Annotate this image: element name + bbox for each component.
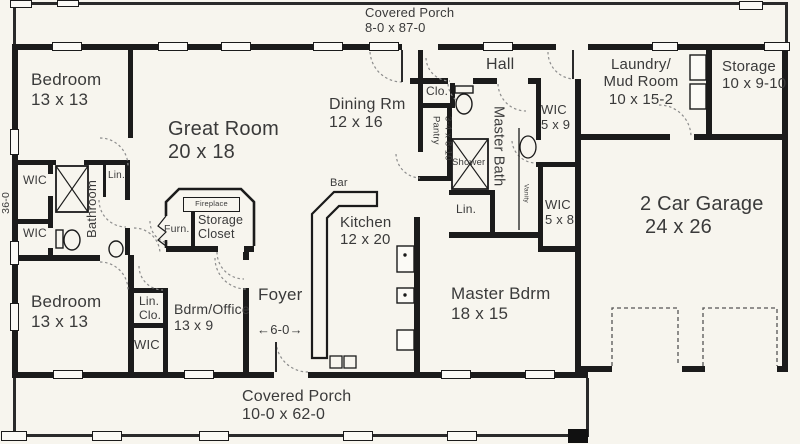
porch-post <box>199 431 229 441</box>
foyer-label: Foyer <box>258 285 302 305</box>
bedroom-bottom-label: Bedroom 13 x 13 <box>31 292 101 331</box>
master-bdrm-label: Master Bdrm 18 x 15 <box>451 284 551 323</box>
kitchen-label: Kitchen 12 x 20 <box>340 214 391 249</box>
room-dims: 10 x 9-10 <box>722 75 786 92</box>
window <box>52 42 82 51</box>
closet-name: WIC <box>545 198 574 213</box>
bottom-porch-dims: 10-0 x 62-0 <box>242 406 351 424</box>
closet-name: Lin. <box>139 295 161 309</box>
window <box>313 42 343 51</box>
room-name: Dining Rm <box>329 96 406 114</box>
room-dims: 12 x 20 <box>340 231 391 248</box>
closet-name: Pantry <box>429 116 441 161</box>
window <box>652 42 678 51</box>
lin-master-label: Lin. <box>456 203 476 217</box>
window <box>441 370 471 379</box>
wic-left-lower-label: WIC <box>23 227 47 241</box>
great-room-label: Great Room 20 x 18 <box>168 118 279 164</box>
kitchen-appliances <box>397 246 414 350</box>
pantry-label: Pantry 3-4 x 8-10 <box>429 116 454 161</box>
bar-label: Bar <box>330 177 348 190</box>
garage-label: 2 Car Garage 24 x 26 <box>640 193 764 239</box>
room-name: Bdrm/Office <box>174 301 250 317</box>
bottom-porch-label: Covered Porch 10-0 x 62-0 <box>242 388 351 425</box>
floor-plan: Covered Porch 8-0 x 87-0 Covered Porch 1… <box>0 0 800 444</box>
window <box>369 42 399 51</box>
window <box>158 42 188 51</box>
room-name: Kitchen <box>340 214 391 231</box>
top-porch-label: Covered Porch 8-0 x 87-0 <box>365 6 454 36</box>
room-dims: 13 x 9 <box>174 317 250 333</box>
shower-label: Shower <box>452 158 485 169</box>
window <box>525 370 555 379</box>
clo-hall-label: Clo. <box>426 85 448 99</box>
wic-office-label: WIC <box>134 338 160 353</box>
room-dims: 10 x 15-2 <box>596 91 686 108</box>
top-porch-dims: 8-0 x 87-0 <box>365 21 454 36</box>
window <box>184 370 214 379</box>
closet-name: WIC <box>541 103 570 118</box>
bathroom-label: Bathroom <box>85 180 100 238</box>
garage-door-dashes <box>612 308 777 366</box>
depth-dim-label: 36-0 <box>0 192 12 214</box>
room-dims: 12 x 16 <box>329 114 406 132</box>
lin-clo-label: Lin. Clo. <box>139 295 161 323</box>
vanity-label: Vanity <box>522 184 529 203</box>
room-dims: 24 x 26 <box>645 216 764 239</box>
window <box>10 129 19 155</box>
porch-post <box>739 1 763 10</box>
top-porch-name: Covered Porch <box>365 6 454 21</box>
room-dims: 20 x 18 <box>168 141 279 164</box>
fireplace-label: Fireplace <box>195 200 228 209</box>
closet-name: Clo. <box>139 309 161 323</box>
porch-post <box>447 431 477 441</box>
laundry-label: Laundry/ Mud Room 10 x 15-2 <box>596 56 686 108</box>
window <box>53 370 83 379</box>
bottom-porch-name: Covered Porch <box>242 388 351 406</box>
master-toilet-icon <box>455 86 473 114</box>
dining-label: Dining Rm 12 x 16 <box>329 96 406 133</box>
closet-dims: 5 x 9 <box>541 118 570 133</box>
room-dims: 13 x 13 <box>31 90 101 110</box>
room-name: Great Room <box>168 118 279 141</box>
master-bath-label: Master Bath <box>490 106 507 186</box>
window <box>764 42 790 51</box>
wic-master-1-label: WIC 5 x 9 <box>541 103 570 133</box>
room-name: Mud Room <box>596 73 686 90</box>
room-name: Master Bdrm <box>451 284 551 304</box>
porch-post <box>92 431 122 441</box>
bedroom-top-label: Bedroom 13 x 13 <box>31 70 101 109</box>
room-name: Storage <box>722 58 786 75</box>
porch-post <box>10 0 32 8</box>
room-name: 2 Car Garage <box>640 193 764 216</box>
room-name: Bedroom <box>31 70 101 90</box>
wic-left-upper-label: WIC <box>23 174 47 188</box>
window <box>10 303 19 331</box>
washer-dryer-icons <box>690 55 706 109</box>
window <box>483 42 513 51</box>
window <box>10 241 19 265</box>
room-dims: 18 x 15 <box>451 304 551 324</box>
closet-dims: 3-4 x 8-10 <box>441 116 453 161</box>
closet-dims: 5 x 8 <box>545 213 574 228</box>
window <box>221 42 251 51</box>
lin-bath-label: Lin. <box>108 170 125 182</box>
porch-post <box>1 431 27 441</box>
vanity-icon <box>519 128 536 230</box>
bdrm-office-label: Bdrm/Office 13 x 9 <box>174 301 250 333</box>
porch-corner-post <box>568 429 588 443</box>
furnace-label: Furn. <box>164 223 190 235</box>
porch-post <box>343 431 373 441</box>
closet-name: Storage <box>198 213 243 227</box>
storage-closet-label: Storage Closet <box>198 213 243 242</box>
foyer-dim-label: ←6-0→ <box>257 323 303 338</box>
closet-name: Closet <box>198 227 243 241</box>
room-name: Bedroom <box>31 292 101 312</box>
hall-label: Hall <box>486 56 514 74</box>
room-name: Laundry/ <box>596 56 686 73</box>
room-dims: 13 x 13 <box>31 312 101 332</box>
fireplace-label-box: Fireplace <box>183 197 240 212</box>
porch-post <box>57 0 79 7</box>
storage-label: Storage 10 x 9-10 <box>722 58 786 93</box>
wic-master-2-label: WIC 5 x 8 <box>545 198 574 228</box>
